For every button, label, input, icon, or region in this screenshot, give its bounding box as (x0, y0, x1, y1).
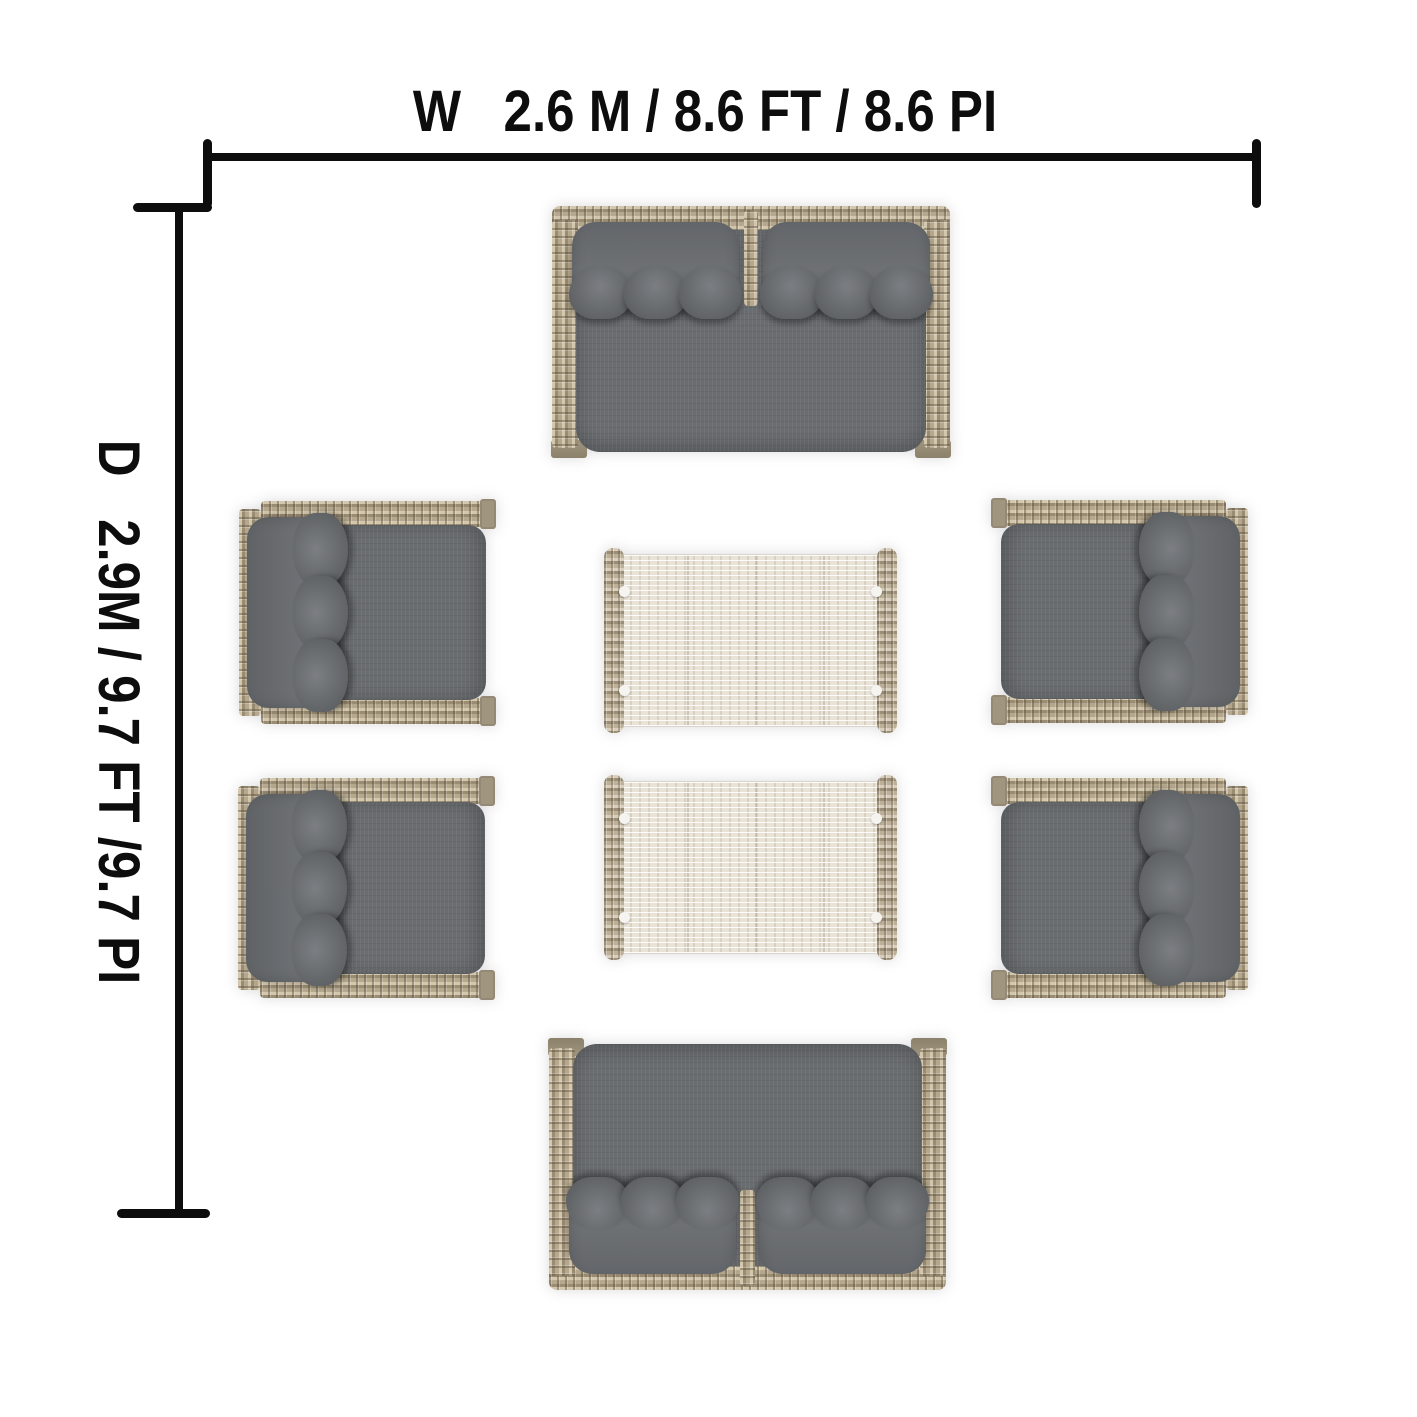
back-pillow (763, 222, 930, 310)
width-dimension-line (205, 153, 1261, 161)
armchair-right-front (991, 500, 1248, 723)
table-corner-cap (619, 685, 630, 696)
table-corner-cap (871, 813, 882, 824)
loveseat-bottom (549, 1038, 946, 1290)
back-pillow (569, 1186, 736, 1274)
table-corner-cap (619, 586, 630, 597)
table-top-surface (620, 781, 881, 954)
back-pillow (572, 222, 739, 310)
depth-dimension-cap-top (133, 203, 212, 212)
back-pillow (1148, 516, 1240, 707)
armchair-right-back (991, 778, 1248, 998)
sofa-center-post (744, 210, 758, 306)
table-corner-cap (871, 685, 882, 696)
depth-dimension-cap-bottom (117, 1209, 210, 1218)
table-corner-cap (619, 813, 630, 824)
table-corner-cap (871, 586, 882, 597)
table-corner-cap (619, 912, 630, 923)
depth-dimension-label: D 2.9M / 9.7 FT /9.7 PI (89, 440, 147, 985)
back-pillow (247, 517, 339, 708)
armchair-left-front (239, 501, 496, 724)
coffee-table-back (604, 775, 897, 960)
back-pillow (759, 1186, 926, 1274)
table-top-surface (620, 554, 881, 727)
depth-dimension-line (175, 204, 183, 1214)
table-side-rail-left (604, 548, 624, 733)
furniture-dimension-diagram: W 2.6 M / 8.6 FT / 8.6 PI D 2.9M / 9.7 F… (0, 0, 1417, 1417)
table-corner-cap (871, 912, 882, 923)
loveseat-top (552, 206, 950, 458)
width-dimension-cap-left (203, 139, 212, 208)
table-side-rail-right (877, 775, 897, 960)
back-pillow (1148, 794, 1240, 982)
sofa-center-post (740, 1190, 754, 1286)
width-dimension-label: W 2.6 M / 8.6 FT / 8.6 PI (413, 83, 997, 141)
back-pillow (246, 794, 338, 982)
table-side-rail-left (604, 775, 624, 960)
coffee-table-front (604, 548, 897, 733)
table-side-rail-right (877, 548, 897, 733)
armchair-left-back (238, 778, 495, 998)
width-dimension-cap-right (1252, 139, 1261, 208)
